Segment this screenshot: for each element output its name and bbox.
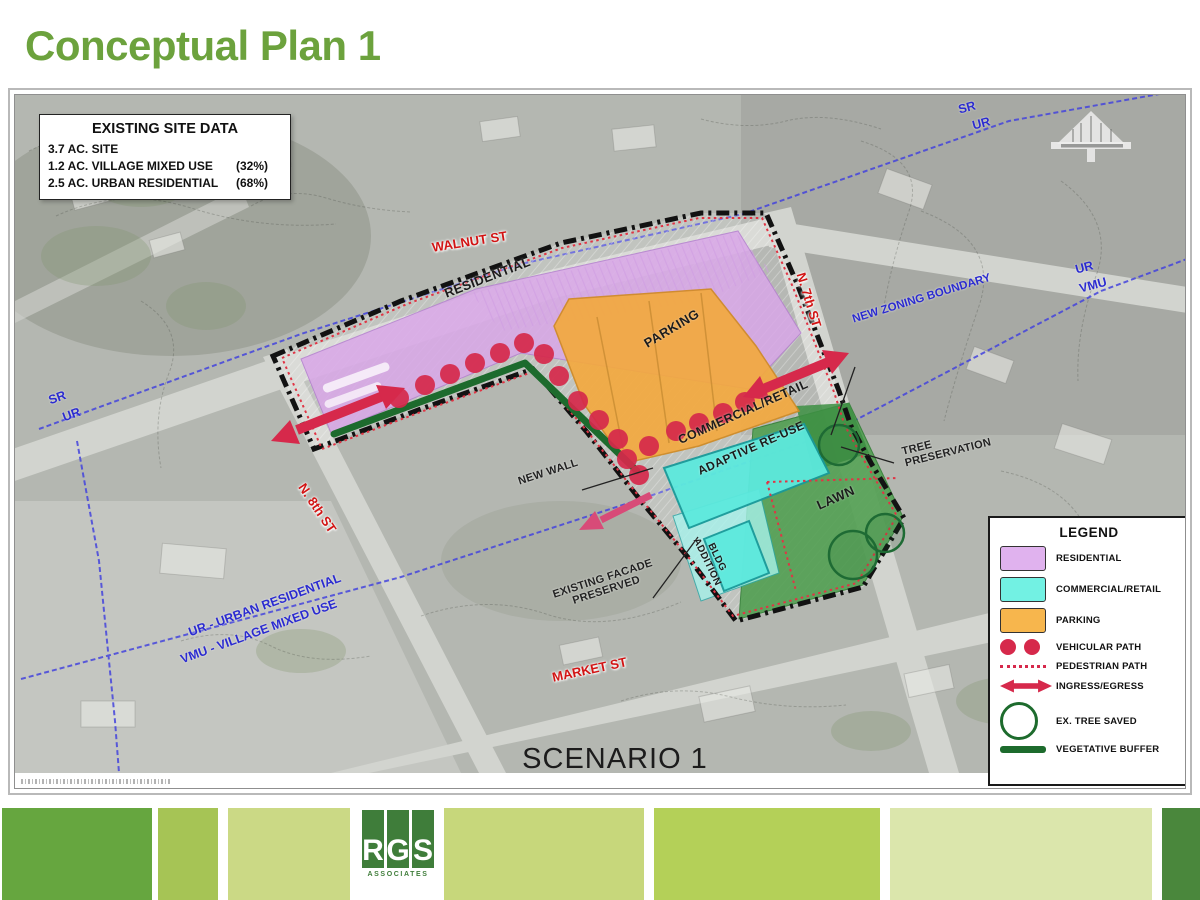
- tree-circle-icon: [1000, 702, 1038, 740]
- legend-item-tree-saved: EX. TREE SAVED: [1000, 700, 1178, 742]
- legend-item-parking: PARKING: [1000, 608, 1178, 633]
- vehicular-dot-icon: [1000, 639, 1016, 655]
- existing-site-data-box: EXISTING SITE DATA 3.7 AC. SITE 1.2 AC. …: [39, 114, 291, 200]
- parking-swatch: [1000, 608, 1046, 633]
- legend-label: RESIDENTIAL: [1056, 553, 1122, 564]
- rgs-letter: G: [387, 810, 409, 868]
- legend-item-ingress-egress: INGRESS/EGRESS: [1000, 678, 1178, 694]
- site-data-row-pct: [236, 141, 282, 158]
- footer-band: R G S ASSOCIATES: [0, 808, 1200, 900]
- site-data-title: EXISTING SITE DATA: [48, 121, 282, 137]
- legend-item-vehicular-path: VEHICULAR PATH: [1000, 639, 1178, 655]
- legend-label: VEGETATIVE BUFFER: [1056, 744, 1159, 755]
- footer-square: [654, 808, 880, 900]
- legend-item-pedestrian-path: PEDESTRIAN PATH: [1000, 661, 1178, 672]
- site-data-row-label: 2.5 AC. URBAN RESIDENTIAL: [48, 175, 236, 192]
- rgs-logo-tiles: R G S: [362, 810, 434, 868]
- buffer-bar-icon: [1000, 746, 1046, 753]
- legend-title: LEGEND: [1000, 525, 1178, 540]
- legend-label: VEHICULAR PATH: [1056, 642, 1141, 653]
- footer-square: [2, 808, 152, 900]
- rgs-letter: R: [362, 810, 384, 868]
- legend-item-commercial: COMMERCIAL/RETAIL: [1000, 577, 1178, 602]
- footer-square: [1162, 808, 1200, 900]
- site-data-row-pct: (32%): [236, 158, 282, 175]
- vehicular-dot-icon: [1024, 639, 1040, 655]
- footer-square: [890, 808, 1152, 900]
- legend-item-residential: RESIDENTIAL: [1000, 546, 1178, 571]
- legend-item-vegetative-buffer: VEGETATIVE BUFFER: [1000, 744, 1178, 755]
- legend: LEGEND RESIDENTIAL COMMERCIAL/RETAIL PAR…: [988, 516, 1186, 786]
- double-arrow-icon: [1000, 678, 1052, 694]
- legend-label: INGRESS/EGRESS: [1056, 681, 1144, 692]
- rgs-letter: S: [412, 810, 434, 868]
- residential-swatch: [1000, 546, 1046, 571]
- site-data-row-label: 3.7 AC. SITE: [48, 141, 236, 158]
- site-data-row: 2.5 AC. URBAN RESIDENTIAL (68%): [48, 175, 282, 192]
- map-frame: WALNUT ST N. 7th ST N. 8th ST MARKET ST …: [8, 88, 1192, 795]
- legend-label: PARKING: [1056, 615, 1101, 626]
- page-title: Conceptual Plan 1: [25, 22, 381, 70]
- dotted-line-icon: [1000, 665, 1046, 668]
- site-data-row-pct: (68%): [236, 175, 282, 192]
- footer-square: [444, 808, 644, 900]
- fine-print-strip: [21, 779, 171, 784]
- site-data-row-label: 1.2 AC. VILLAGE MIXED USE: [48, 158, 236, 175]
- site-plan-map: WALNUT ST N. 7th ST N. 8th ST MARKET ST …: [14, 94, 1186, 789]
- rgs-logo: R G S ASSOCIATES: [358, 808, 438, 900]
- scenario-label: SCENARIO 1: [485, 743, 745, 776]
- footer-square: [158, 808, 218, 900]
- legend-label: PEDESTRIAN PATH: [1056, 661, 1147, 672]
- commercial-swatch: [1000, 577, 1046, 602]
- slide: Conceptual Plan 1: [0, 0, 1200, 900]
- site-data-row: 3.7 AC. SITE: [48, 141, 282, 158]
- footer-square: [228, 808, 350, 900]
- site-data-row: 1.2 AC. VILLAGE MIXED USE (32%): [48, 158, 282, 175]
- rgs-logo-subtitle: ASSOCIATES: [368, 871, 429, 878]
- legend-label: COMMERCIAL/RETAIL: [1056, 584, 1161, 595]
- legend-label: EX. TREE SAVED: [1056, 716, 1137, 727]
